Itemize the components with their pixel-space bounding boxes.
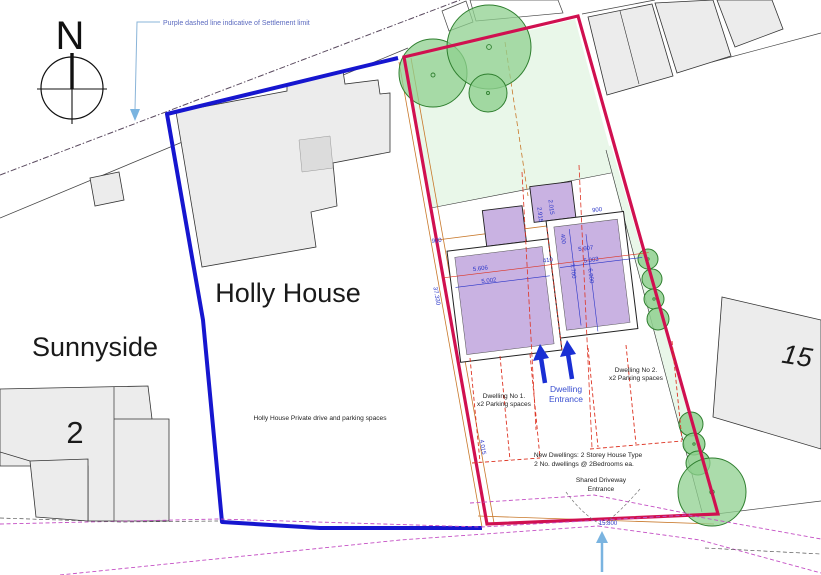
sunnyside-label: Sunnyside — [32, 332, 158, 362]
settlement-note-text: Purple dashed line indicative of Settlem… — [163, 20, 310, 27]
leader-arrowhead — [130, 109, 140, 121]
dwelling1-note-line1: Dwelling No 1. — [483, 393, 526, 400]
holly-house-building — [176, 71, 390, 267]
holly-house-label: Holly House — [215, 278, 361, 308]
dwelling-entrance-label-line1: Dwelling — [550, 384, 582, 394]
shared-driveway-note-line2: Entrance — [588, 486, 615, 493]
sight-line-magenta — [60, 526, 598, 575]
private-drive-note: Holly House Private drive and parking sp… — [253, 415, 387, 422]
entrance-arrow — [568, 354, 572, 379]
entrance-arrow — [541, 358, 545, 383]
dim-frontage: 15.800 — [599, 521, 618, 527]
dwelling-entrance-label-line2: Entrance — [549, 394, 583, 404]
shed-building — [90, 172, 124, 206]
dwelling-1 — [455, 247, 554, 355]
site-plan-svg: 5.606 5.002 410 5.607 5.003 7.700 6.900 … — [0, 0, 821, 575]
sight-line-magenta — [470, 495, 690, 514]
shared-driveway-note-line1: Shared Driveway — [576, 477, 627, 484]
north-arrow-compass: N — [37, 14, 107, 124]
neighbour-building — [717, 0, 783, 47]
house-2-label: 2 — [66, 415, 83, 450]
tree — [469, 74, 507, 112]
dwelling2-note-line1: Dwelling No 2. — [615, 367, 658, 374]
dim-drive-width: 4.015 — [478, 439, 487, 455]
entrance-arrowhead — [560, 340, 576, 357]
track-dashed-line — [705, 548, 821, 554]
north-label: N — [56, 14, 85, 58]
outbuilding — [30, 459, 88, 521]
site-plan-drawing: 5.606 5.002 410 5.607 5.003 7.700 6.900 … — [0, 0, 821, 575]
dwelling1-note-line2: x2 Parking spaces — [477, 401, 532, 408]
leader-line — [135, 22, 160, 110]
shared-entrance-arrowhead — [596, 531, 608, 543]
porch-dwelling-1 — [482, 206, 526, 247]
house-15-label: 15 — [780, 339, 815, 373]
holly-house-chimney — [299, 136, 333, 172]
new-dwellings-note-line2: 2 No. dwellings @ 2Bedrooms ea. — [534, 461, 634, 468]
dim-offset-left: 900 — [431, 238, 442, 245]
dim-offset-right: 900 — [592, 207, 603, 214]
dwelling2-note-line2: x2 Parking spaces — [609, 375, 664, 382]
building-15 — [713, 297, 821, 449]
new-dwellings-note-line1: New Dwellings: 2 Storey House Type — [534, 452, 643, 459]
